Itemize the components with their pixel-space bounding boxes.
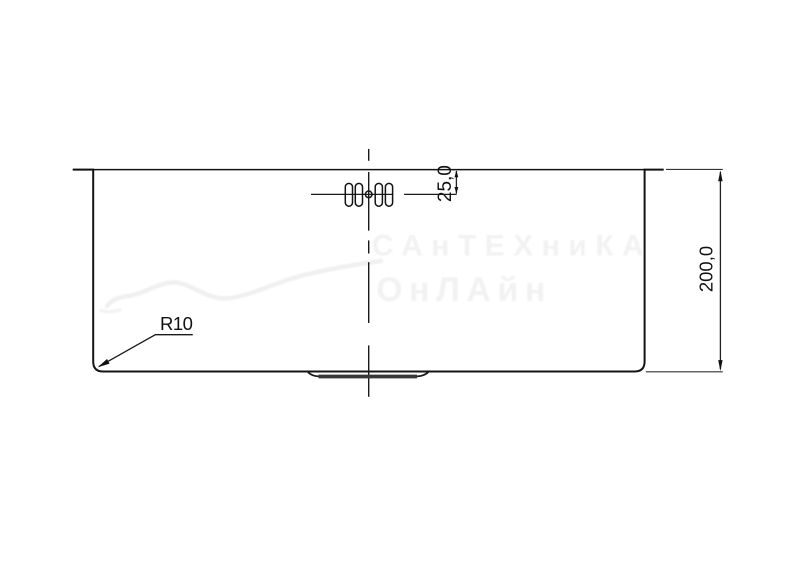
svg-text:ОнЛАйн: ОнЛАйн (376, 271, 552, 309)
svg-text:САнТЕХниКА: САнТЕХниКА (372, 230, 653, 263)
svg-text:200,0: 200,0 (695, 246, 716, 292)
svg-text:R10: R10 (160, 313, 193, 334)
svg-text:25,0: 25,0 (435, 165, 456, 202)
